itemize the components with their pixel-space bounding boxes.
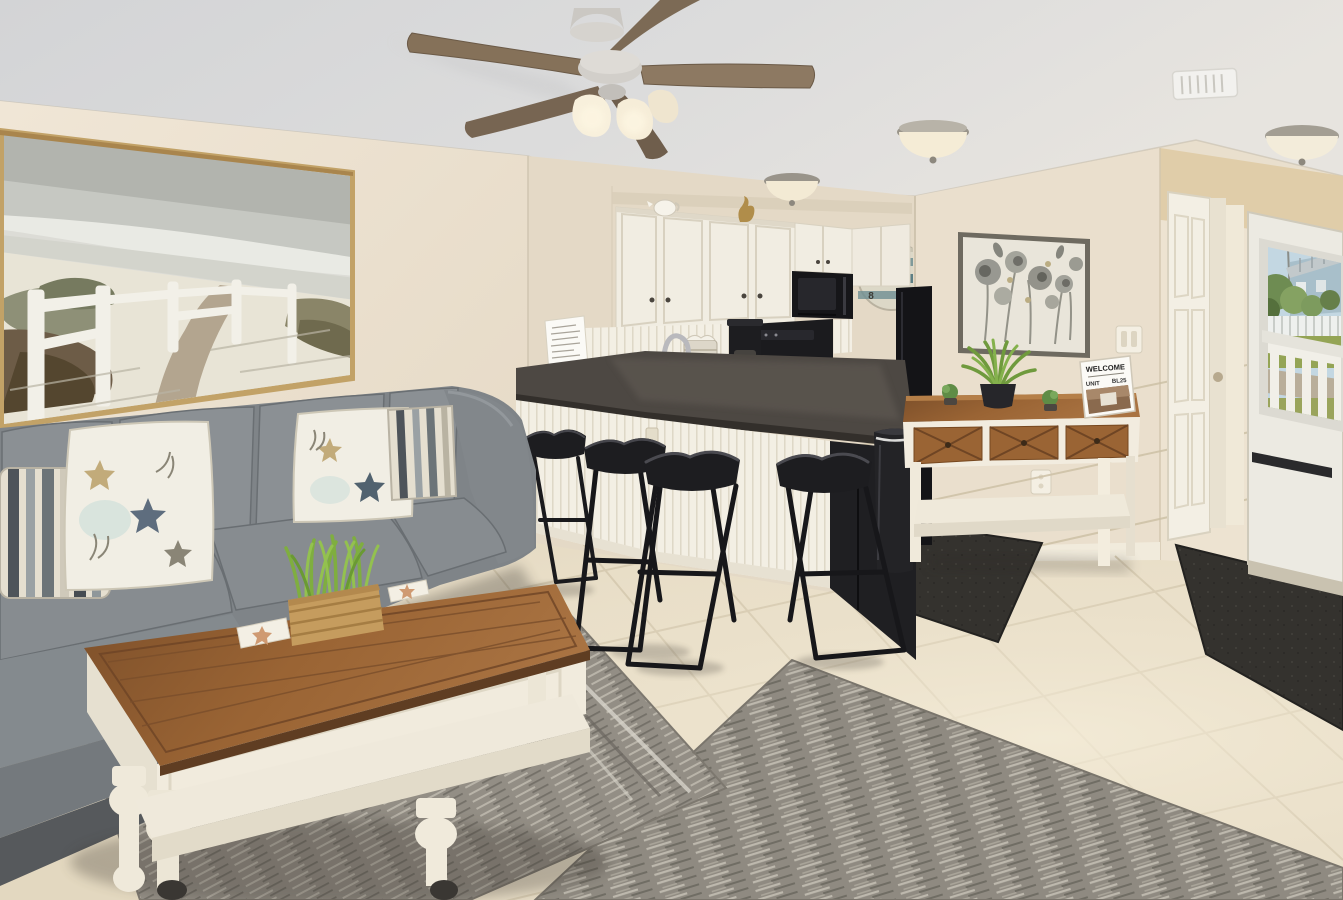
upper-cabinets-left xyxy=(616,207,795,330)
floral-artwork xyxy=(958,232,1090,358)
welcome-sign-unit-value: BL25 xyxy=(1112,378,1128,385)
welcome-sign-unit-label: UNIT xyxy=(1086,381,1101,388)
caster-wheel xyxy=(430,880,458,900)
succulent-small-left xyxy=(942,384,958,405)
console-drawers xyxy=(914,425,1128,464)
pillow-striped-right xyxy=(388,406,456,500)
succulent-small-right xyxy=(1042,390,1058,411)
pillow-starfish-left xyxy=(65,422,214,590)
caster-wheel xyxy=(157,880,187,900)
photo-canvas: 12 11 10 9 8 xyxy=(0,0,1343,900)
entry-door xyxy=(1248,212,1343,596)
light-switch xyxy=(1116,326,1142,353)
ceiling-vent xyxy=(1172,68,1237,99)
closet-door-knob xyxy=(1213,372,1223,382)
microwave xyxy=(792,271,853,319)
welcome-sign: WELCOME UNIT BL25 xyxy=(1080,356,1135,418)
closet-door xyxy=(1168,192,1244,540)
scene-svg: 12 11 10 9 8 xyxy=(0,0,1343,900)
clock-number-8: 8 xyxy=(868,291,874,302)
plant-pot xyxy=(980,384,1016,409)
wall-outlet-console xyxy=(1031,470,1051,494)
